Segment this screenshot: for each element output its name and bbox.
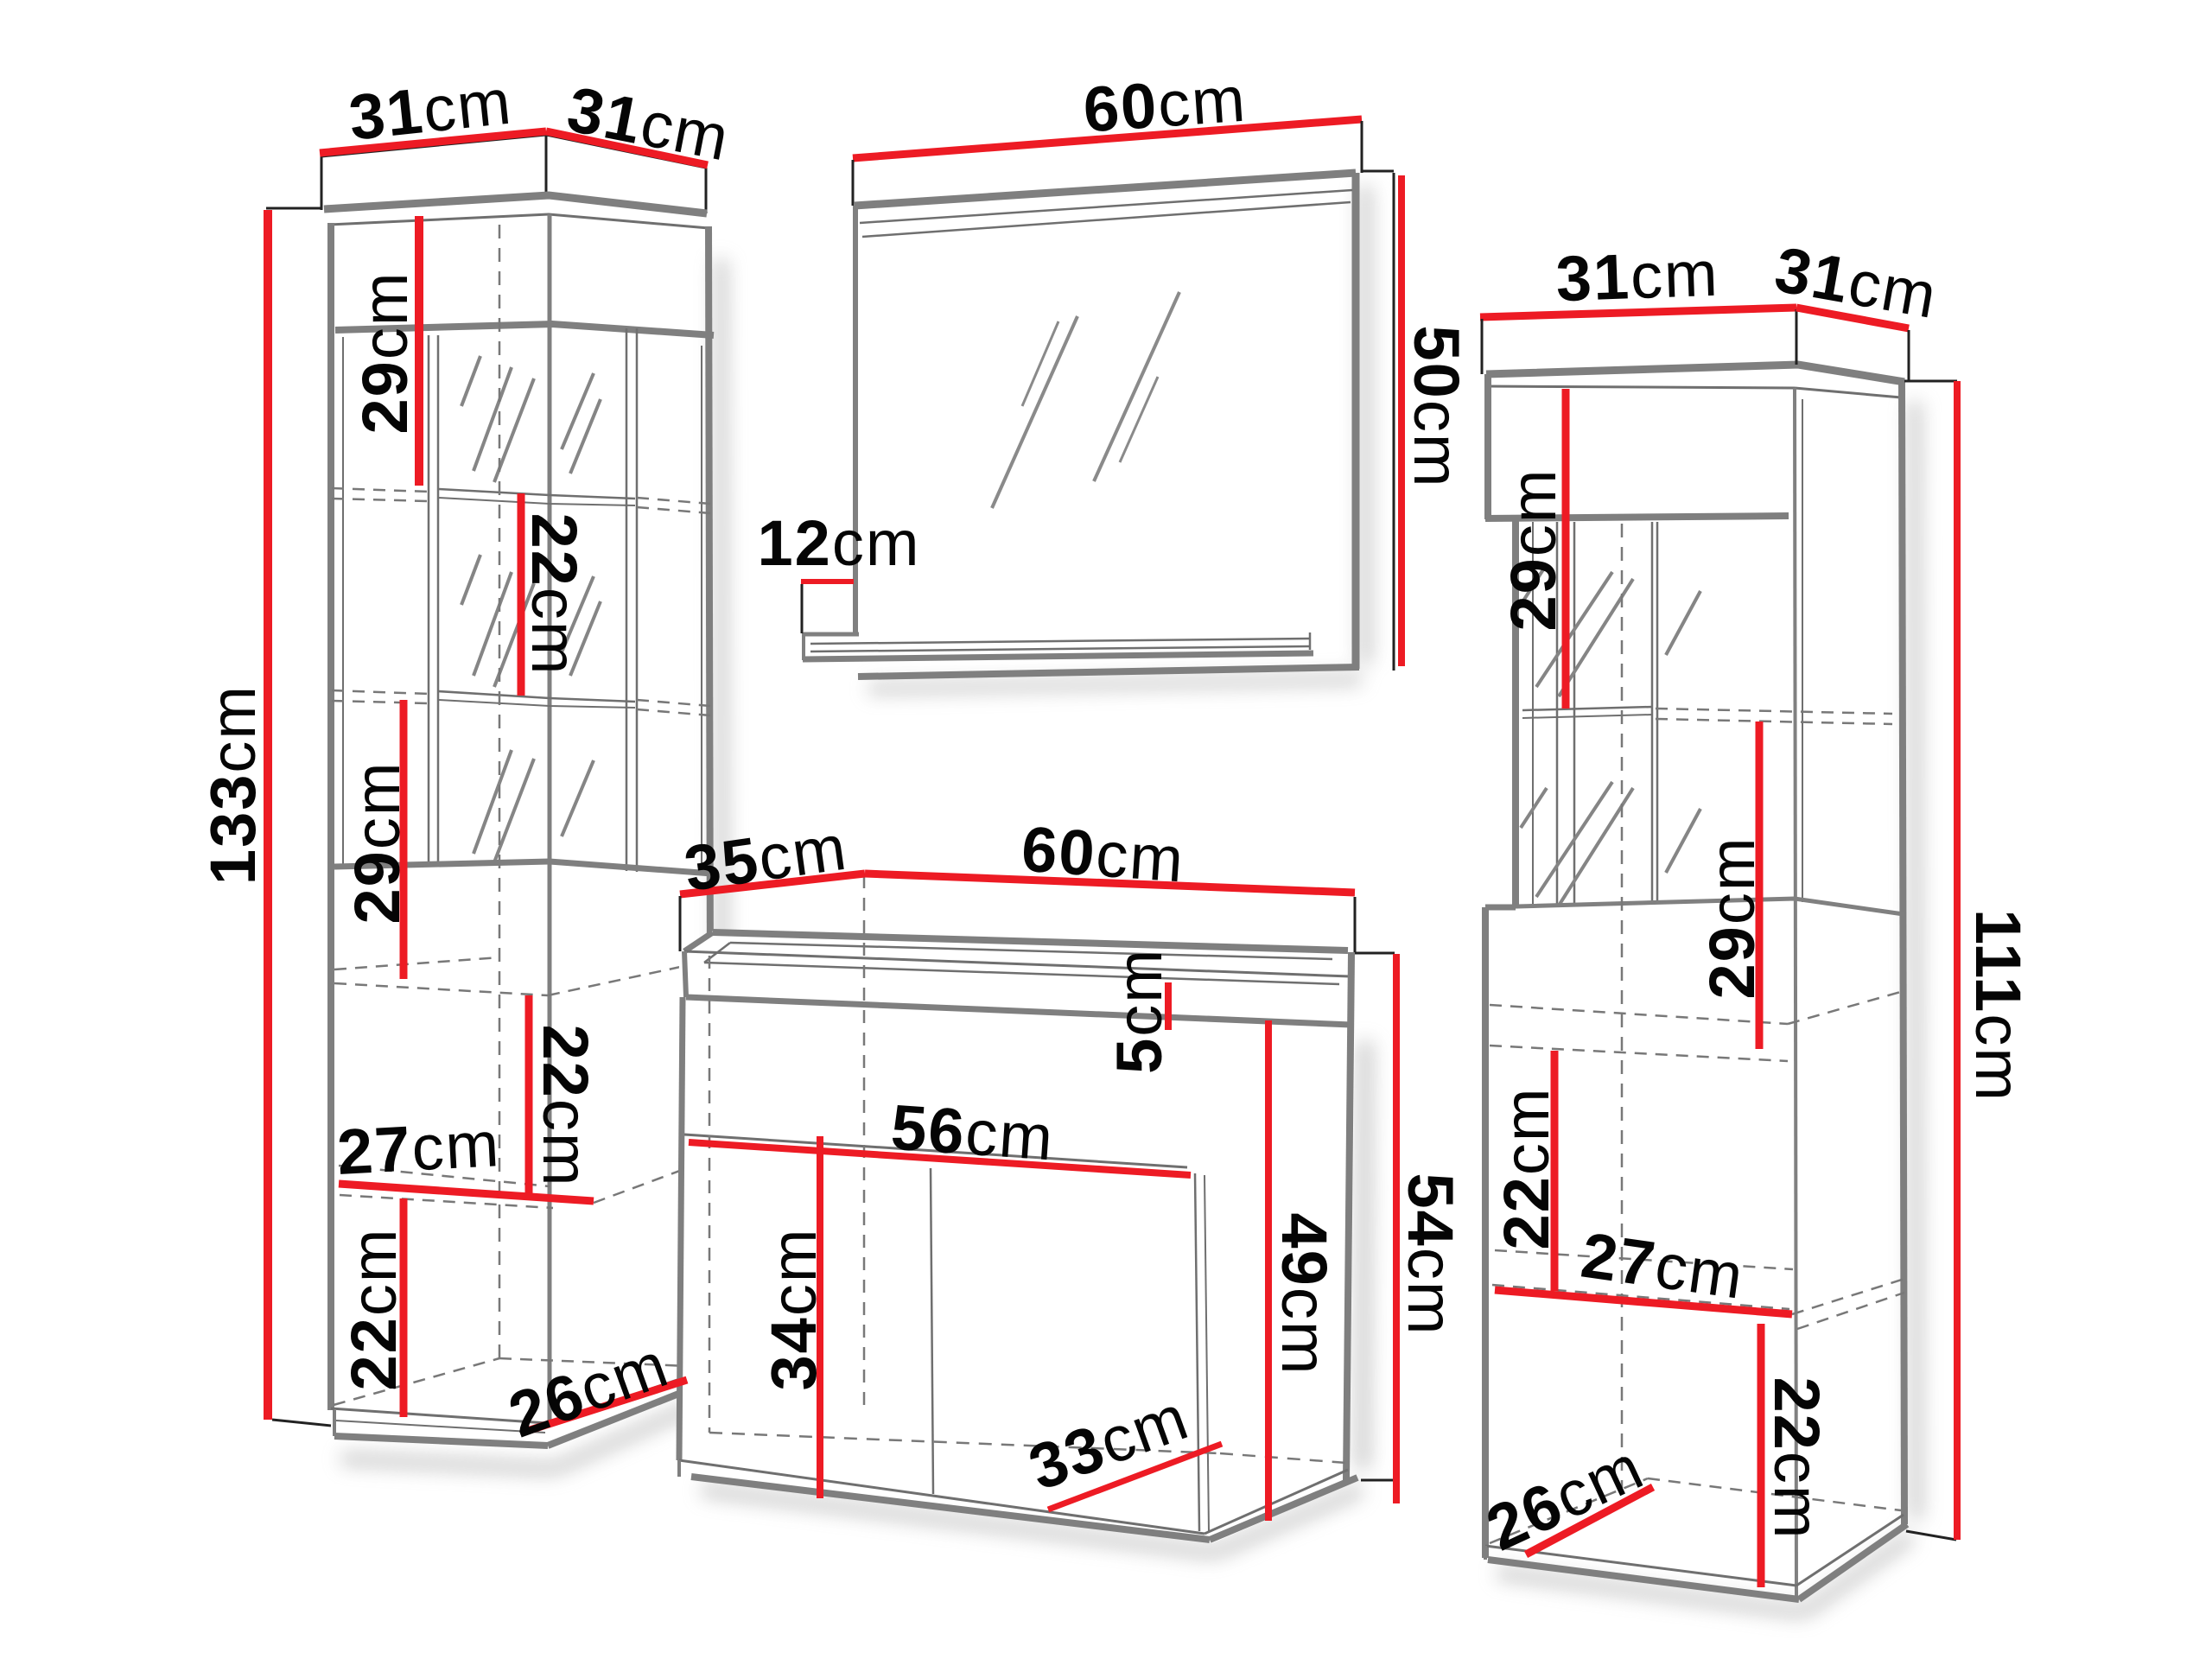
- svg-text:12cm: 12cm: [758, 507, 921, 579]
- svg-text:60cm: 60cm: [1020, 813, 1187, 896]
- svg-text:34cm: 34cm: [758, 1228, 829, 1391]
- svg-text:5cm: 5cm: [1103, 948, 1175, 1074]
- svg-text:60cm: 60cm: [1081, 63, 1249, 146]
- svg-text:29cm: 29cm: [1696, 836, 1768, 1000]
- svg-text:22cm: 22cm: [1761, 1377, 1833, 1541]
- svg-text:31cm: 31cm: [1554, 238, 1720, 315]
- svg-text:29cm: 29cm: [1497, 468, 1569, 632]
- svg-text:50cm: 50cm: [1401, 326, 1472, 489]
- svg-text:29cm: 29cm: [349, 271, 421, 435]
- svg-text:22cm: 22cm: [338, 1228, 410, 1391]
- svg-text:49cm: 49cm: [1268, 1213, 1340, 1376]
- svg-text:22cm: 22cm: [530, 1025, 601, 1188]
- svg-text:27cm: 27cm: [335, 1108, 502, 1188]
- svg-text:54cm: 54cm: [1395, 1173, 1466, 1337]
- svg-text:111cm: 111cm: [1962, 909, 2034, 1103]
- svg-text:29cm: 29cm: [341, 761, 413, 925]
- svg-text:133cm: 133cm: [197, 684, 269, 885]
- svg-text:22cm: 22cm: [1491, 1087, 1562, 1250]
- svg-text:22cm: 22cm: [518, 513, 590, 677]
